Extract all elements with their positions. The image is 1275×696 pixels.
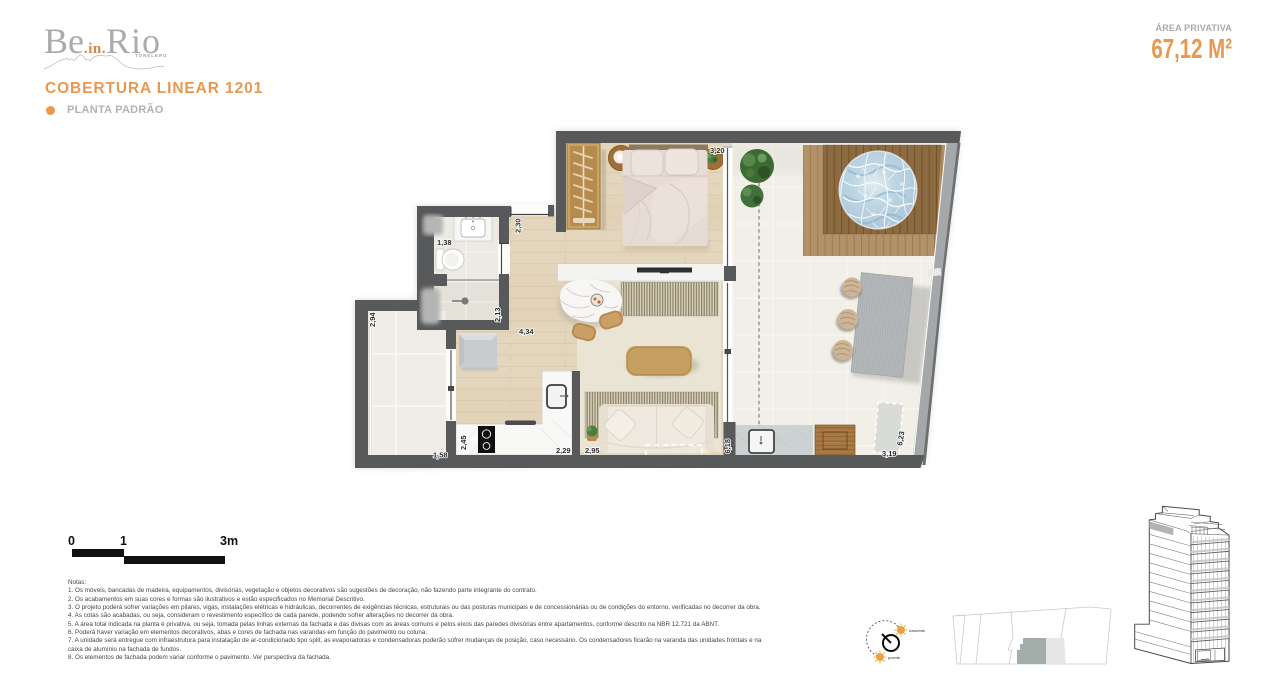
svg-text:2,95: 2,95 xyxy=(585,446,600,455)
svg-text:nascente: nascente xyxy=(909,628,926,633)
svg-text:3,20: 3,20 xyxy=(710,146,725,155)
svg-text:2,29: 2,29 xyxy=(556,446,571,455)
svg-text:2,30: 2,30 xyxy=(514,218,523,233)
svg-text:1,58: 1,58 xyxy=(433,451,448,460)
svg-text:2,94: 2,94 xyxy=(368,312,377,327)
svg-text:2,13: 2,13 xyxy=(493,307,502,322)
svg-text:3,19: 3,19 xyxy=(882,449,897,458)
svg-text:4,34: 4,34 xyxy=(519,327,534,336)
svg-text:1,38: 1,38 xyxy=(437,238,452,247)
svg-text:6,18: 6,18 xyxy=(723,439,732,454)
svg-text:2,45: 2,45 xyxy=(459,435,468,450)
svg-text:poente: poente xyxy=(888,655,901,660)
